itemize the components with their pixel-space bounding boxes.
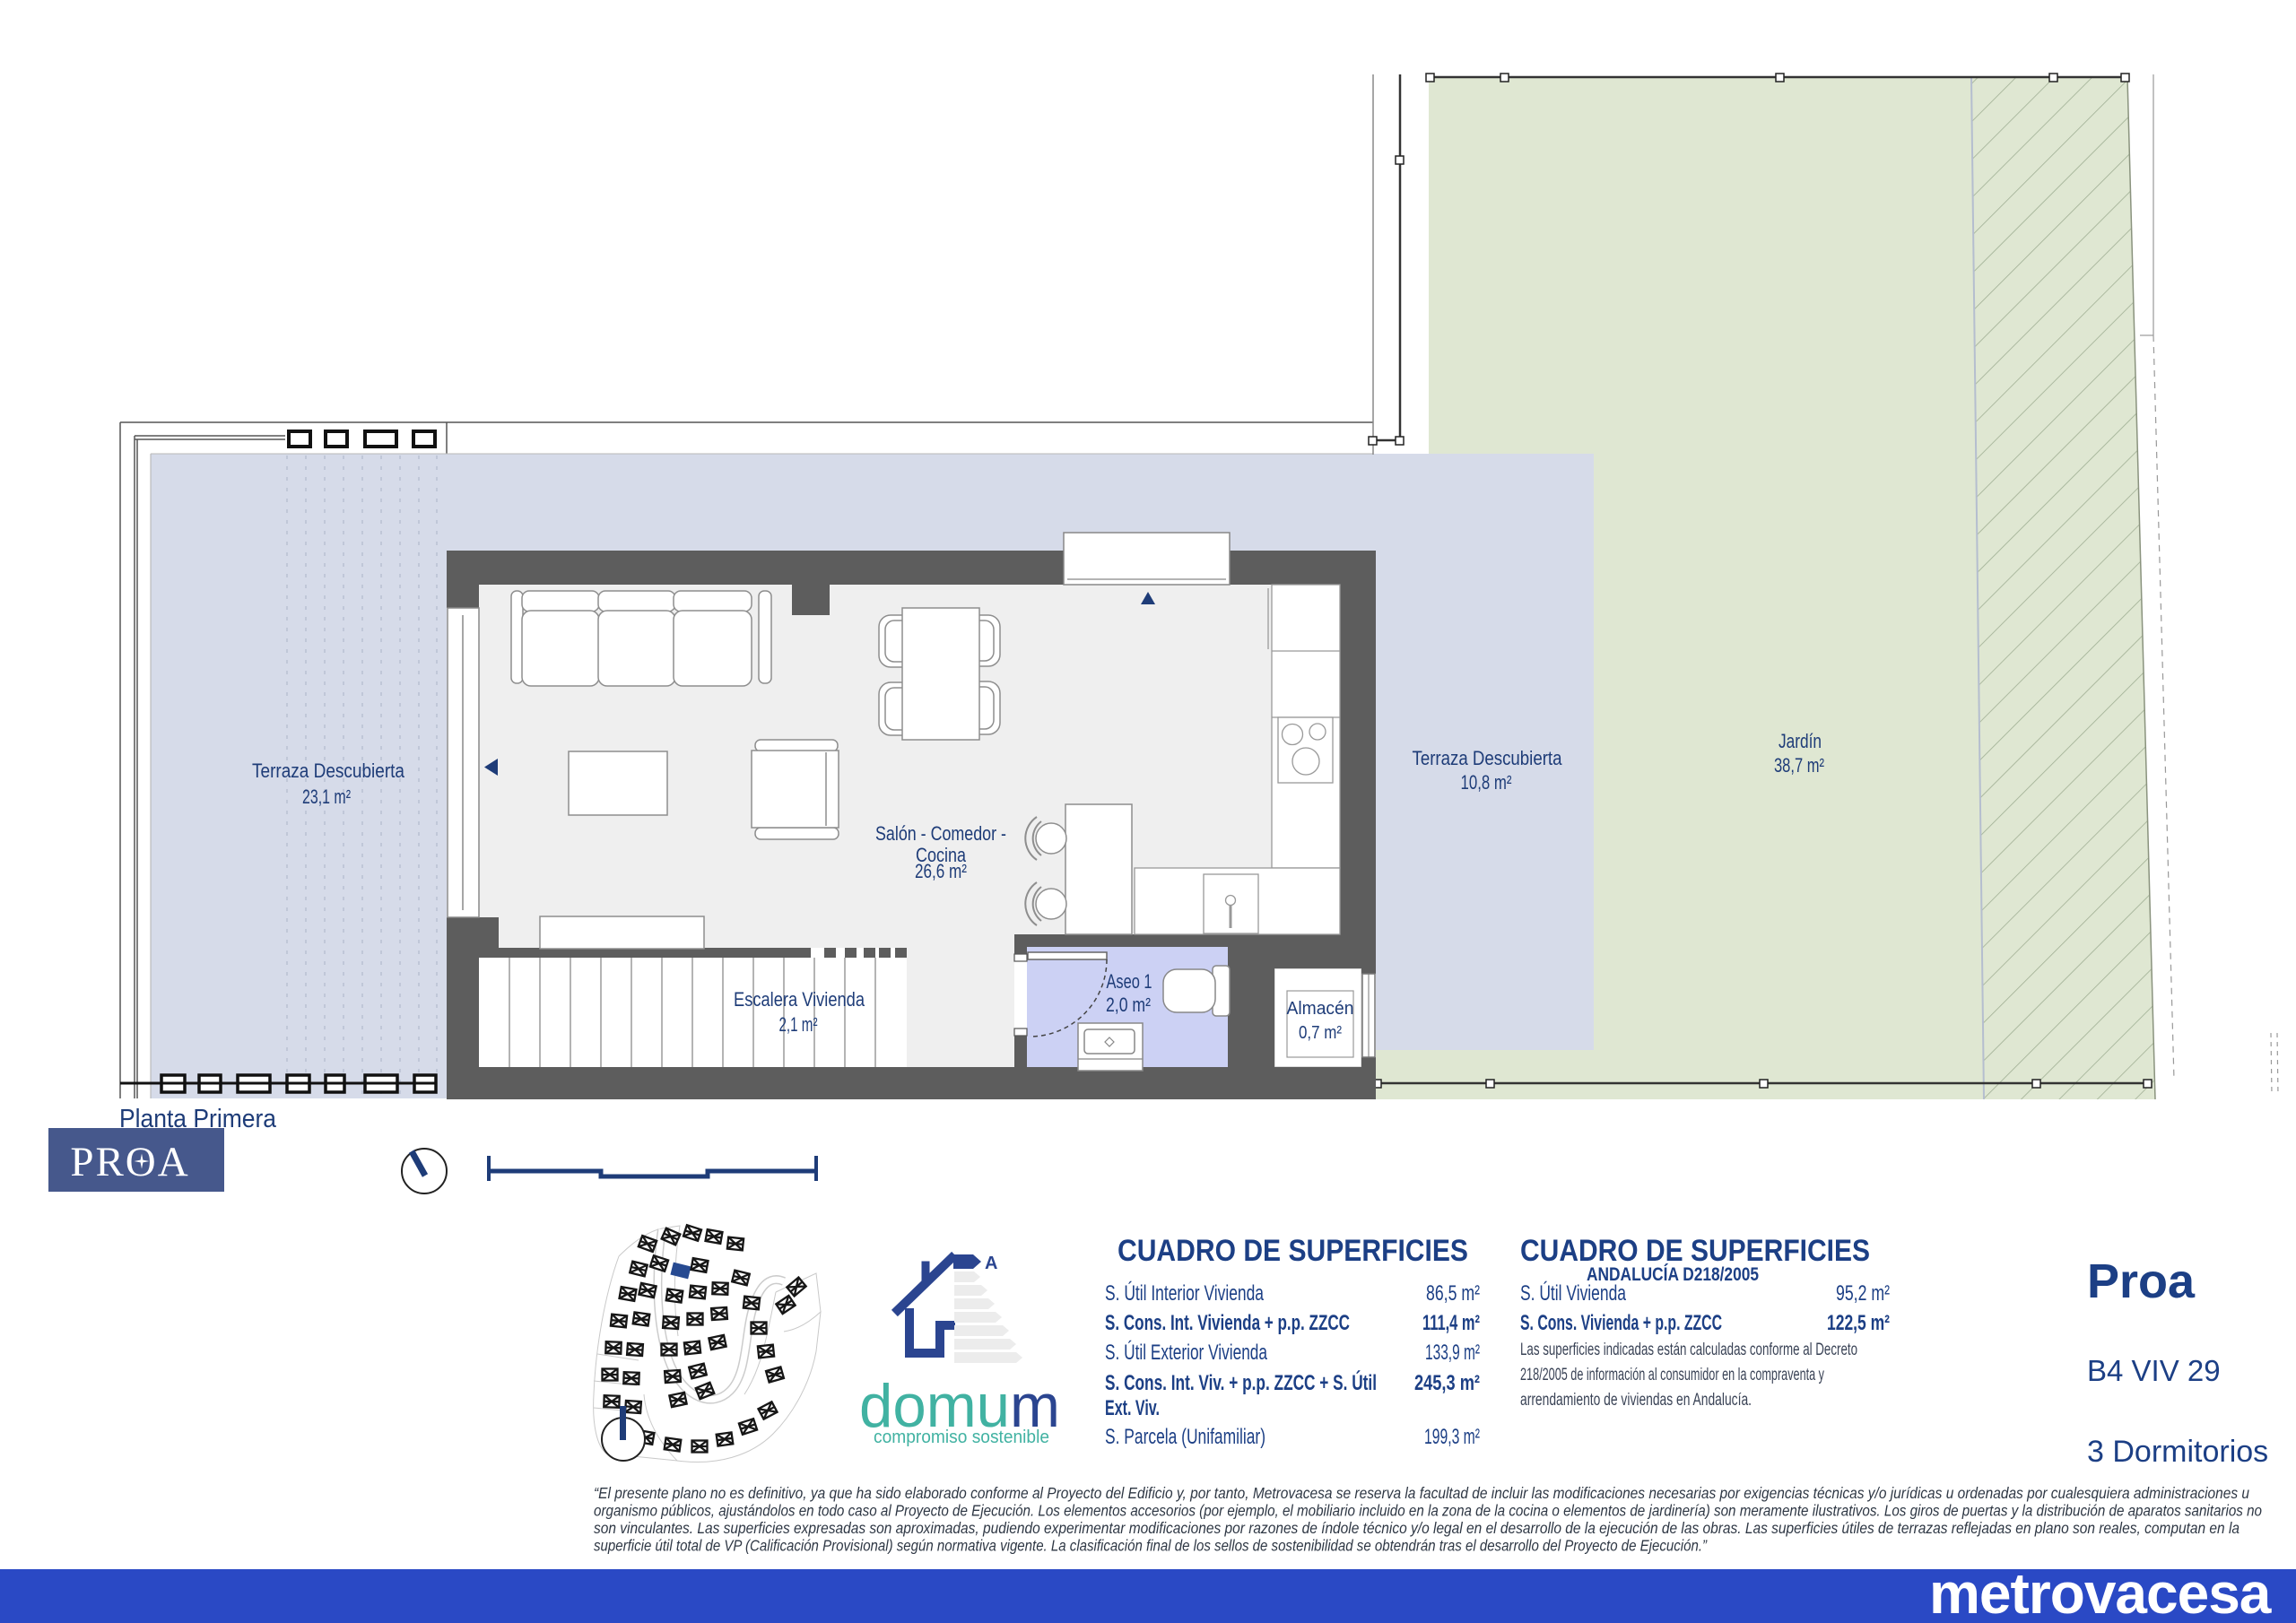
svg-text:S. Útil Exterior Vivienda: S. Útil Exterior Vivienda bbox=[1105, 1341, 1267, 1365]
svg-text:245,3 m²: 245,3 m² bbox=[1414, 1371, 1480, 1395]
svg-text:arrendamiento de viviendas en: arrendamiento de viviendas en Andalucía. bbox=[1520, 1391, 1752, 1410]
svg-text:S. Cons. Int. Vivienda + p.p.: S. Cons. Int. Vivienda + p.p. ZZCC bbox=[1105, 1311, 1350, 1335]
svg-text:PROA: PROA bbox=[70, 1139, 189, 1185]
svg-text:10,8 m²: 10,8 m² bbox=[1461, 771, 1512, 794]
svg-text:S. Útil Vivienda: S. Útil Vivienda bbox=[1520, 1281, 1626, 1306]
svg-text:Terraza Descubierta: Terraza Descubierta bbox=[1413, 747, 1563, 769]
svg-text:0,7 m²: 0,7 m² bbox=[1299, 1023, 1342, 1043]
svg-text:S. Cons. Vivienda + p.p. ZZCC: S. Cons. Vivienda + p.p. ZZCC bbox=[1520, 1311, 1722, 1335]
svg-text:122,5 m²: 122,5 m² bbox=[1827, 1311, 1890, 1335]
svg-text:23,1 m²: 23,1 m² bbox=[302, 785, 351, 808]
svg-text:111,4 m²: 111,4 m² bbox=[1422, 1311, 1480, 1335]
svg-text:CUADRO DE SUPERFICIES: CUADRO DE SUPERFICIES bbox=[1520, 1234, 1870, 1268]
svg-text:son vinculantes. Las superfici: son vinculantes. Las superficies expresa… bbox=[594, 1519, 2239, 1537]
svg-text:metrovacesa: metrovacesa bbox=[1929, 1561, 2272, 1623]
svg-text:B4 VIV 29: B4 VIV 29 bbox=[2087, 1354, 2221, 1387]
svg-text:3 Dormitorios: 3 Dormitorios bbox=[2087, 1435, 2268, 1469]
svg-text:Almacén: Almacén bbox=[1287, 999, 1354, 1019]
svg-text:superficie útil total de VP (C: superficie útil total de VP (Calificació… bbox=[594, 1537, 1708, 1555]
svg-text:Terraza Descubierta: Terraza Descubierta bbox=[252, 759, 405, 782]
svg-text:S. Parcela (Unifamiliar): S. Parcela (Unifamiliar) bbox=[1105, 1425, 1265, 1449]
svg-text:S. Cons. Int. Viv. + p.p. ZZCC: S. Cons. Int. Viv. + p.p. ZZCC + S. Útil bbox=[1105, 1370, 1377, 1395]
svg-text:199,3 m²: 199,3 m² bbox=[1424, 1425, 1480, 1449]
svg-text:2,0 m²: 2,0 m² bbox=[1106, 994, 1151, 1016]
svg-text:compromiso sostenible: compromiso sostenible bbox=[874, 1428, 1049, 1447]
svg-text:organismo públicos, ajustándol: organismo públicos, ajustándolos en todo… bbox=[594, 1502, 2262, 1520]
svg-text:A: A bbox=[985, 1254, 997, 1273]
svg-text:218/2005 de información al con: 218/2005 de información al consumidor en… bbox=[1520, 1366, 1824, 1384]
svg-text:Las superficies indicadas está: Las superficies indicadas están calculad… bbox=[1520, 1341, 1857, 1359]
svg-text:Escalera Vivienda: Escalera Vivienda bbox=[734, 988, 865, 1011]
svg-text:2,1 m²: 2,1 m² bbox=[779, 1013, 818, 1036]
svg-text:“El presente plano no es defin: “El presente plano no es definitivo, ya … bbox=[594, 1484, 2249, 1502]
svg-text:CUADRO DE SUPERFICIES: CUADRO DE SUPERFICIES bbox=[1118, 1234, 1468, 1268]
svg-text:95,2 m²: 95,2 m² bbox=[1836, 1281, 1890, 1306]
svg-text:26,6 m²: 26,6 m² bbox=[915, 860, 967, 882]
svg-text:133,9 m²: 133,9 m² bbox=[1425, 1341, 1480, 1365]
svg-text:Salón - Comedor -: Salón - Comedor - bbox=[875, 822, 1006, 845]
svg-text:Ext. Viv.: Ext. Viv. bbox=[1105, 1396, 1160, 1420]
svg-text:Proa: Proa bbox=[2087, 1254, 2196, 1308]
svg-text:S. Útil Interior Vivienda: S. Útil Interior Vivienda bbox=[1105, 1281, 1264, 1306]
svg-text:Jardín: Jardín bbox=[1779, 730, 1822, 752]
svg-text:86,5 m²: 86,5 m² bbox=[1426, 1281, 1480, 1306]
svg-text:38,7 m²: 38,7 m² bbox=[1774, 754, 1824, 777]
svg-text:Aseo 1: Aseo 1 bbox=[1107, 970, 1152, 993]
